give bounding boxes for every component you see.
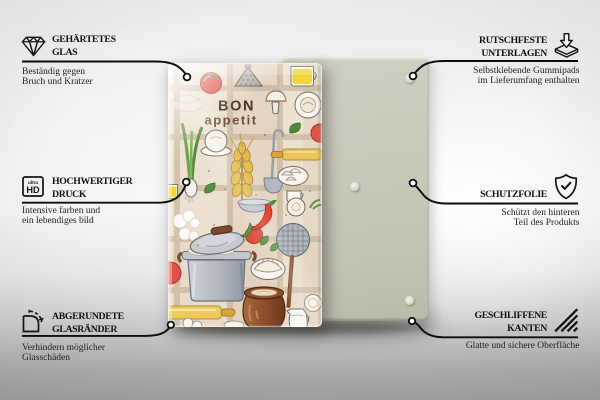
svg-text:HD: HD	[26, 185, 40, 195]
